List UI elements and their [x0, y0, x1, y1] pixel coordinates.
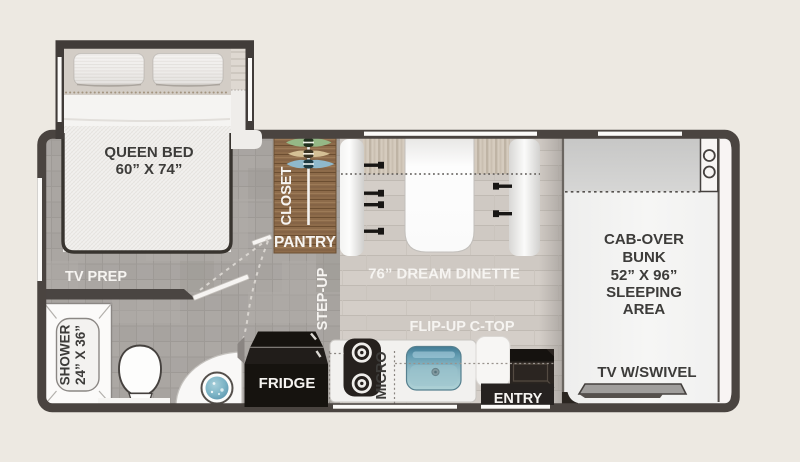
svg-text:SHOWER: SHOWER: [58, 324, 73, 385]
svg-text:AREA: AREA: [623, 301, 666, 318]
svg-text:TV PREP: TV PREP: [65, 269, 127, 285]
svg-text:MICRO: MICRO: [374, 351, 390, 399]
svg-text:CLOSET: CLOSET: [279, 166, 295, 225]
svg-text:CAB-OVER: CAB-OVER: [604, 231, 684, 248]
svg-text:FLIP-UP C-TOP: FLIP-UP C-TOP: [410, 319, 515, 335]
svg-text:24” X 36”: 24” X 36”: [73, 325, 88, 385]
svg-text:BUNK: BUNK: [622, 249, 665, 266]
svg-text:SLEEPING: SLEEPING: [606, 284, 682, 301]
svg-text:TV W/SWIVEL: TV W/SWIVEL: [597, 364, 696, 381]
svg-text:QUEEN BED: QUEEN BED: [104, 144, 193, 161]
svg-text:52” X 96”: 52” X 96”: [611, 267, 678, 284]
svg-text:FRIDGE: FRIDGE: [259, 375, 316, 392]
svg-text:PANTRY: PANTRY: [274, 234, 337, 251]
svg-text:STEP-UP: STEP-UP: [315, 267, 331, 330]
svg-text:76” DREAM DINETTE: 76” DREAM DINETTE: [368, 266, 520, 283]
svg-text:60” X 74”: 60” X 74”: [116, 161, 183, 178]
svg-text:ENTRY: ENTRY: [494, 391, 543, 407]
